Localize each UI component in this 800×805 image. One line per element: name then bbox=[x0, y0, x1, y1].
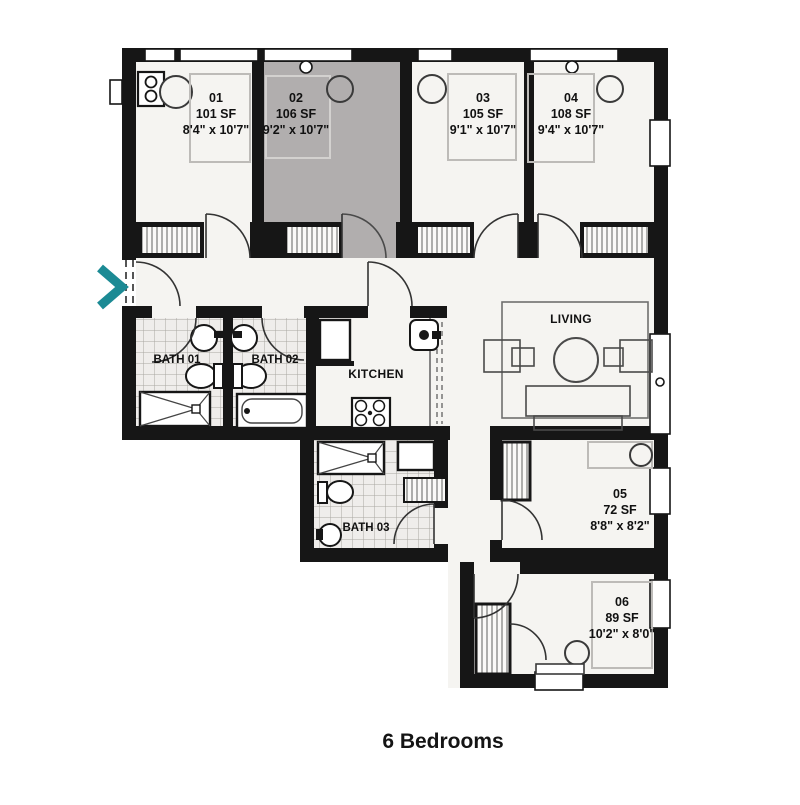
bedroom-04-area: 108 SF bbox=[551, 107, 592, 121]
side-table bbox=[327, 76, 353, 102]
closet-bedroom-03 bbox=[418, 227, 470, 253]
bedroom-02-number: 02 bbox=[289, 91, 303, 105]
closet-bedroom-05 bbox=[502, 442, 530, 500]
bedroom-01-number: 01 bbox=[209, 91, 223, 105]
bedroom-02-area: 106 SF bbox=[276, 107, 317, 121]
closet-bedroom-01 bbox=[142, 227, 200, 253]
closet-bedroom-02 bbox=[287, 227, 339, 253]
plan-caption: 6 Bedrooms bbox=[0, 730, 800, 754]
floor-plan: 01 101 SF 8'4" x 10'7" 02 106 SF 9'2" x … bbox=[0, 0, 800, 800]
window-marker-icon bbox=[300, 61, 312, 73]
bedroom-01-area: 101 SF bbox=[196, 107, 237, 121]
toilet-bath-01 bbox=[186, 364, 216, 388]
toilet-bath-03 bbox=[327, 481, 353, 503]
side-table bbox=[160, 76, 192, 108]
bedroom-03-dims: 9'1" x 10'7" bbox=[450, 123, 517, 137]
bath-02-label: BATH 02 bbox=[251, 354, 298, 366]
side-table bbox=[630, 444, 652, 466]
bedroom-03-area: 105 SF bbox=[463, 107, 504, 121]
bedroom-04-dims: 9'4" x 10'7" bbox=[538, 123, 605, 137]
closet-bedroom-04 bbox=[584, 227, 648, 253]
bath-03-label: BATH 03 bbox=[342, 522, 389, 534]
living-label: LIVING bbox=[550, 312, 592, 326]
bedroom-05-area: 72 SF bbox=[603, 503, 637, 517]
entry-arrow-icon bbox=[100, 268, 122, 306]
side-table bbox=[418, 75, 446, 103]
bath-01-label: BATH 01 bbox=[153, 354, 201, 366]
window-marker-icon bbox=[656, 378, 664, 386]
closet-bath-03 bbox=[398, 442, 434, 470]
kitchen-label: KITCHEN bbox=[348, 367, 403, 381]
side-table bbox=[597, 76, 623, 102]
bedroom-06-dims: 10'2" x 8'0" bbox=[589, 627, 656, 641]
bedroom-06-number: 06 bbox=[615, 595, 629, 609]
bedroom-closet-band bbox=[136, 222, 654, 258]
round-table bbox=[554, 338, 598, 382]
bedroom-02-dims: 9'2" x 10'7" bbox=[263, 123, 330, 137]
bedroom-04-number: 04 bbox=[564, 91, 578, 105]
linen-closet bbox=[404, 478, 446, 502]
window-bench bbox=[536, 664, 584, 674]
bedroom-01-dims: 8'4" x 10'7" bbox=[183, 123, 250, 137]
bedroom-06-area: 89 SF bbox=[605, 611, 639, 625]
bedroom-05-number: 05 bbox=[613, 487, 627, 501]
bedroom-03-number: 03 bbox=[476, 91, 490, 105]
fridge bbox=[320, 320, 350, 360]
bedroom-05-dims: 8'8" x 8'2" bbox=[590, 519, 650, 533]
floor-plan-figure: 01 101 SF 8'4" x 10'7" 02 106 SF 9'2" x … bbox=[0, 0, 800, 800]
window-marker-icon bbox=[566, 61, 578, 73]
stool bbox=[565, 641, 589, 665]
